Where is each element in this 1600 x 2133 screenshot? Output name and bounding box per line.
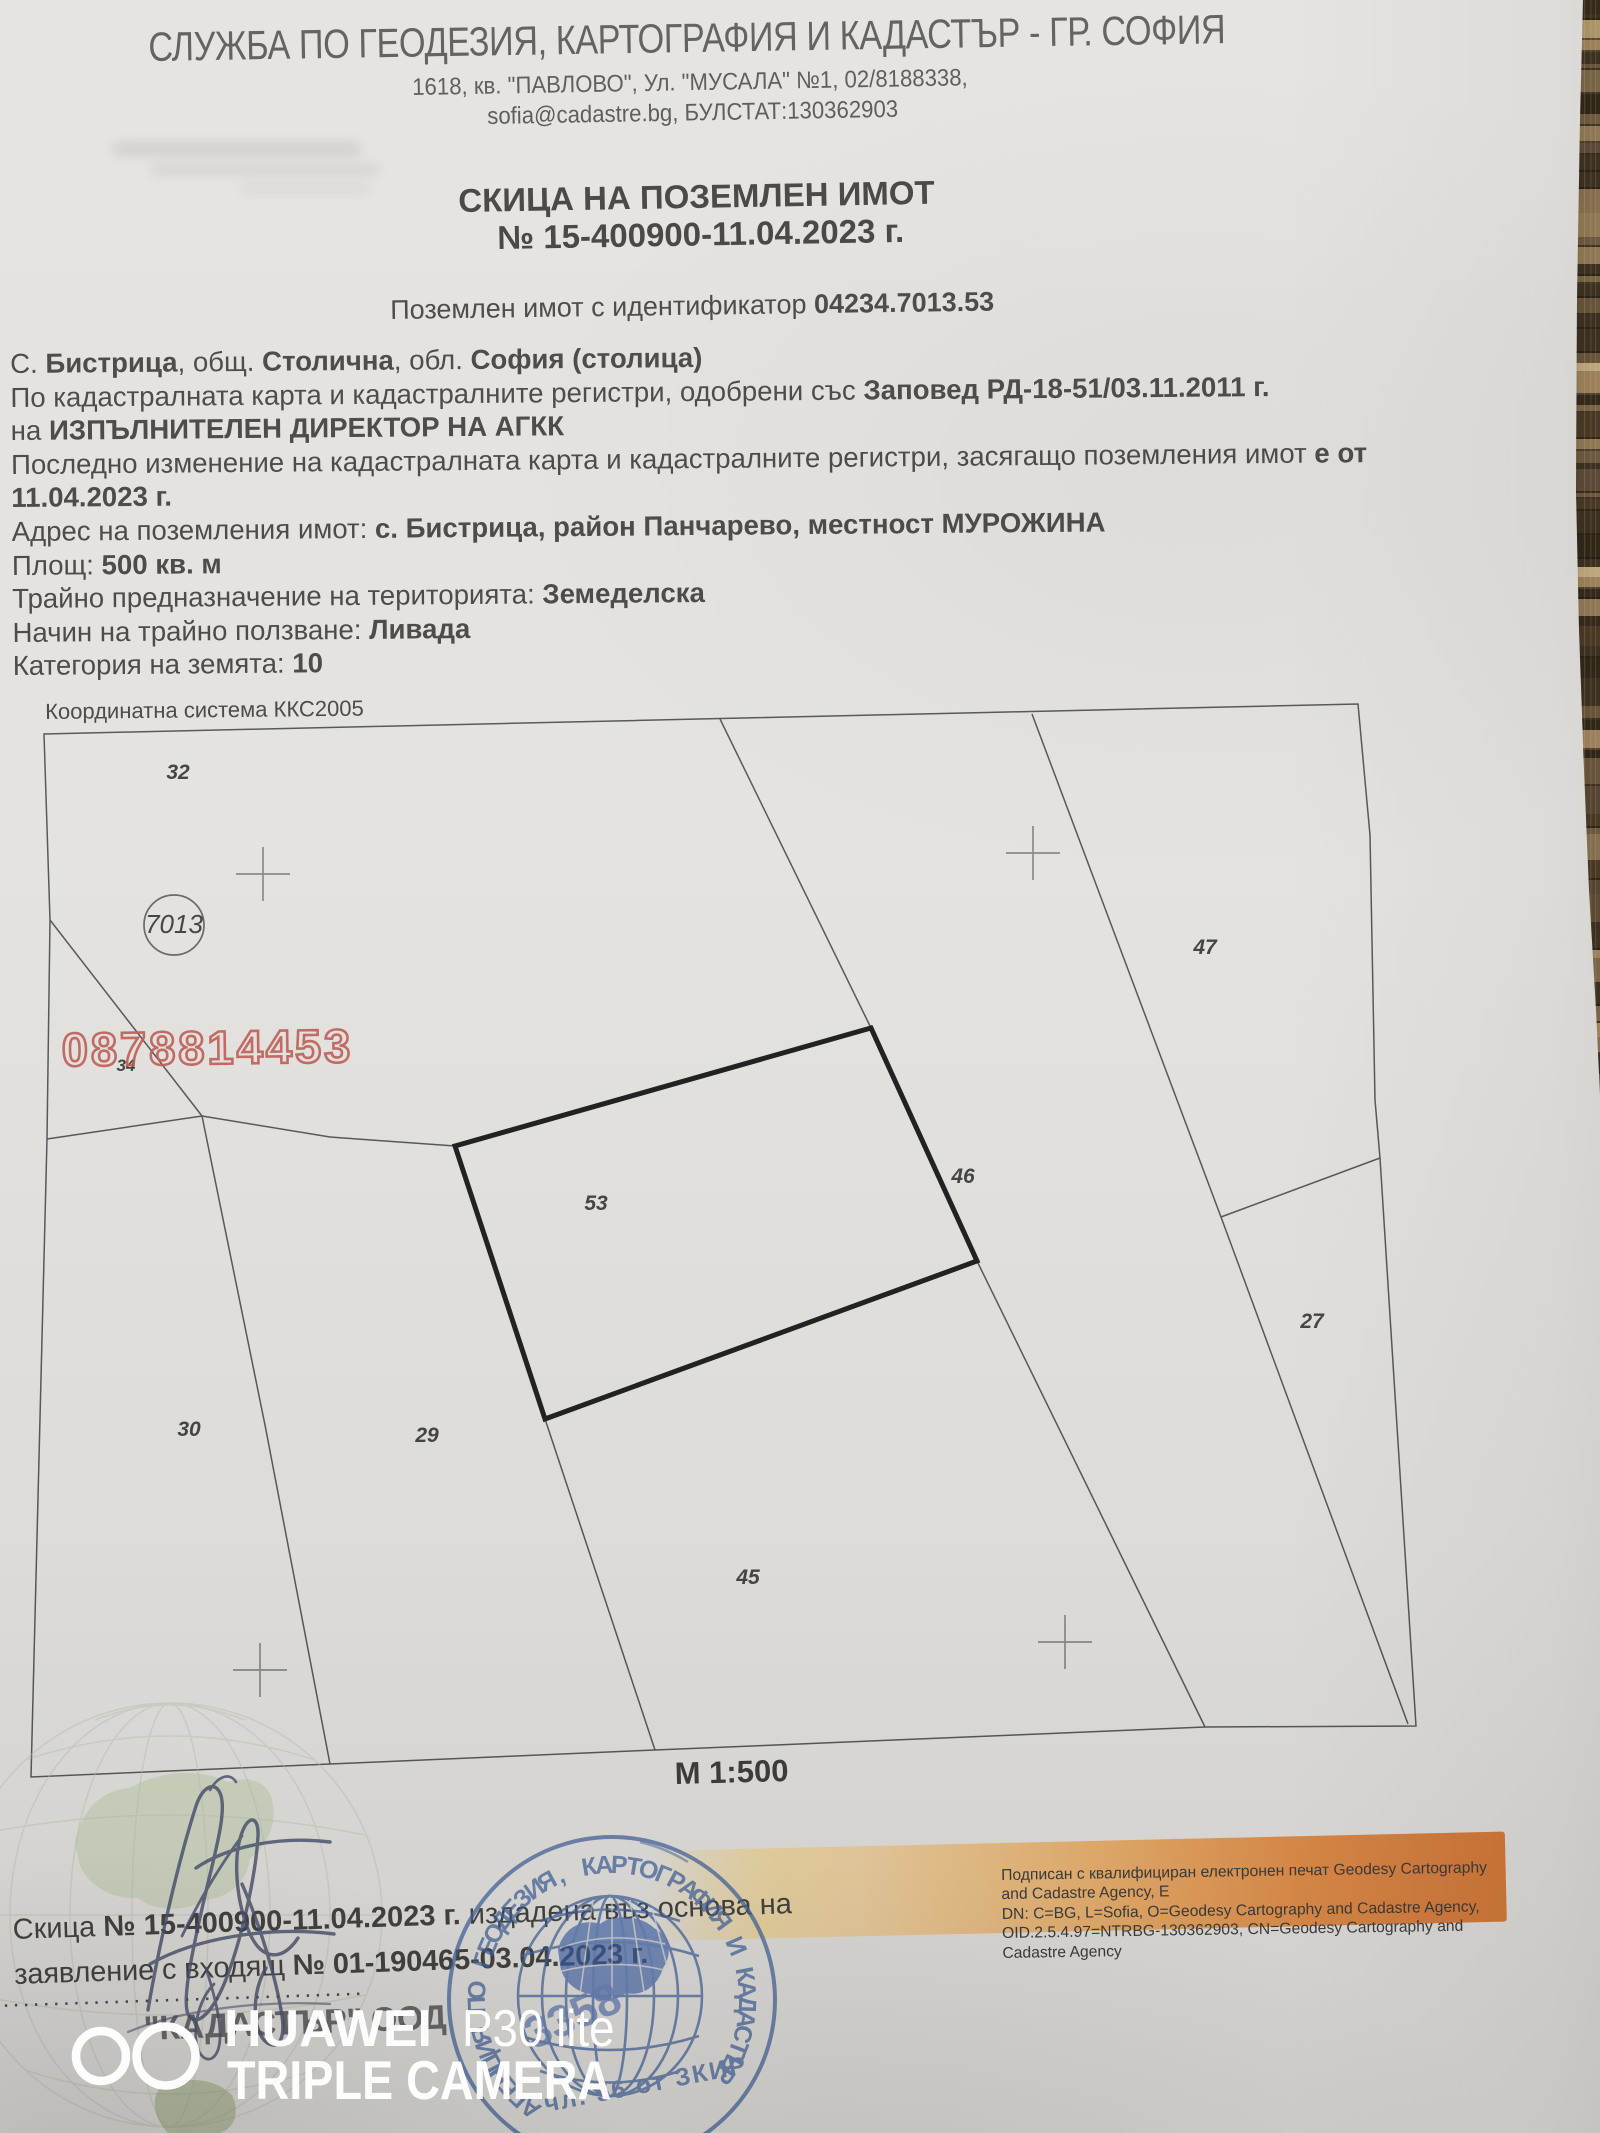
svg-text:И: И — [719, 1932, 752, 1960]
svg-text:45: 45 — [735, 1566, 760, 1589]
svg-text:47: 47 — [1192, 936, 1218, 959]
svg-text:29: 29 — [414, 1424, 439, 1447]
svg-text:7013: 7013 — [145, 909, 203, 939]
svg-text:0878814453: 0878814453 — [61, 1019, 353, 1076]
svg-text:30: 30 — [177, 1418, 201, 1441]
svg-text:32: 32 — [166, 761, 190, 784]
svg-text:53: 53 — [584, 1192, 608, 1215]
svg-text:М 1:500: М 1:500 — [674, 1753, 789, 1791]
svg-text:27: 27 — [1299, 1310, 1325, 1333]
svg-text:46: 46 — [950, 1165, 975, 1188]
svg-text:TRIPLE CAMERA: TRIPLE CAMERA — [227, 2049, 611, 2110]
